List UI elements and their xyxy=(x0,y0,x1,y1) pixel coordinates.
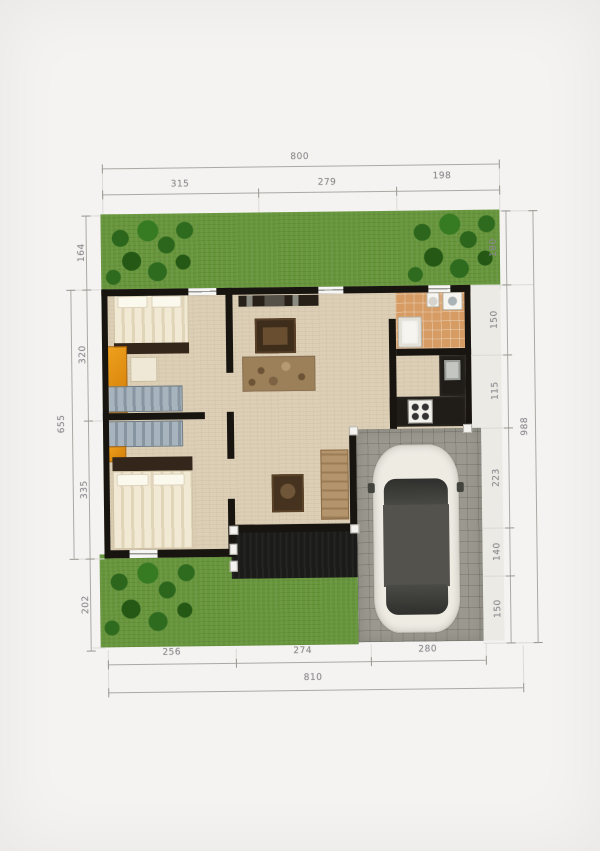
floorplan-image: 800 315 279 198 256 274 280 810 164 320 … xyxy=(0,0,600,851)
stove xyxy=(408,399,433,423)
dining-table xyxy=(272,474,304,512)
dim-tick xyxy=(66,290,75,291)
dim-tick xyxy=(501,210,510,211)
car-windshield xyxy=(384,478,448,507)
dim-tick xyxy=(534,642,543,643)
wall-bedroom-2-bottom xyxy=(105,549,235,559)
dim-tick xyxy=(486,656,487,665)
toilet xyxy=(426,292,439,307)
terrace-door-step-1 xyxy=(229,544,237,555)
dim-top-seg2-label: 279 xyxy=(307,176,347,188)
dim-tick xyxy=(503,354,512,355)
dim-tick xyxy=(108,660,109,669)
living-room-rug xyxy=(242,356,315,392)
side-table-bedroom-1 xyxy=(130,357,157,382)
shower-tub xyxy=(398,317,422,348)
wall-bedroom-divider xyxy=(103,412,205,420)
wall-bedroom-column-b xyxy=(227,412,235,459)
pillar-carport-left xyxy=(349,426,358,435)
wall-bathroom-left xyxy=(389,319,397,429)
extension-line xyxy=(108,650,109,690)
dim-tick xyxy=(499,186,500,195)
car-mirror-left xyxy=(368,483,375,493)
dim-tick xyxy=(523,683,524,692)
dim-left-outer-label: 655 xyxy=(56,409,68,439)
wall-carport-divider xyxy=(349,429,357,531)
wall-living-bottom xyxy=(234,523,357,533)
dim-bottom-seg3-label: 280 xyxy=(408,643,448,655)
dim-tick xyxy=(87,651,96,652)
dim-right-seg5-label: 140 xyxy=(491,537,503,567)
dim-line-left-segments xyxy=(85,216,91,651)
window-top-3 xyxy=(428,285,450,292)
dim-tick xyxy=(528,210,537,211)
pillar-terrace-left xyxy=(229,526,238,535)
tv-cabinet xyxy=(238,295,318,307)
pillar-carport-right xyxy=(463,424,472,433)
dim-bottom-total-label: 810 xyxy=(293,672,333,684)
car-roof xyxy=(383,504,450,587)
dim-tick xyxy=(84,421,93,422)
terrace-floor xyxy=(231,527,358,579)
dim-tick xyxy=(371,657,372,666)
dim-tick xyxy=(507,642,516,643)
dim-right-outer-label: 988 xyxy=(519,411,531,441)
dim-tick xyxy=(505,527,514,528)
terrace-door-step-2 xyxy=(230,561,238,572)
dim-tick xyxy=(504,427,513,428)
dim-tick xyxy=(499,160,500,169)
dim-bottom-seg2-label: 274 xyxy=(283,645,323,657)
extension-line xyxy=(93,647,106,648)
dim-tick xyxy=(86,559,95,560)
dim-line-bottom-segments xyxy=(108,660,486,666)
bed-2-headboard xyxy=(112,456,192,471)
dim-top-seg3-label: 198 xyxy=(422,170,462,182)
dim-line-right-outer xyxy=(532,210,538,642)
dim-tick xyxy=(102,164,103,173)
closet-bedroom-1 xyxy=(108,385,183,412)
closet-bedroom-2 xyxy=(108,420,183,447)
bed-2-pillow-right xyxy=(153,473,185,485)
dim-tick xyxy=(506,575,515,576)
dim-top-seg1-label: 315 xyxy=(160,178,200,190)
dim-left-seg2-label: 320 xyxy=(77,340,89,370)
kitchen-sink xyxy=(444,360,460,380)
car xyxy=(372,444,460,633)
pillar-terrace-right xyxy=(350,524,359,533)
dim-left-seg3-label: 335 xyxy=(79,475,91,505)
bed-2-pillow-left xyxy=(117,474,149,486)
bush-top-left xyxy=(103,217,196,290)
bed-1-pillow-left xyxy=(117,296,147,308)
dim-top-total-label: 800 xyxy=(280,151,320,163)
dim-line-bottom-total xyxy=(108,687,523,693)
washbasin xyxy=(442,292,462,310)
dim-right-seg3-label: 115 xyxy=(489,376,501,406)
coffee-table xyxy=(255,318,296,353)
floorplan-scene: 800 315 279 198 256 274 280 810 164 320 … xyxy=(0,0,600,851)
dim-tick xyxy=(82,290,91,291)
dim-tick xyxy=(102,190,103,199)
dim-right-seg6-label: 150 xyxy=(492,594,504,624)
dim-line-top-total xyxy=(102,164,499,170)
bush-bottom-left xyxy=(102,557,199,643)
wall-bathroom-bottom xyxy=(396,348,471,356)
dim-tick xyxy=(258,188,259,197)
dim-right-seg4-label: 223 xyxy=(490,463,502,493)
dim-tick xyxy=(396,187,397,196)
dim-tick xyxy=(502,284,511,285)
sideboard-cabinet xyxy=(320,449,349,519)
dim-left-seg4-label: 202 xyxy=(80,590,92,620)
extension-line xyxy=(258,196,259,212)
car-mirror-right xyxy=(457,482,464,492)
window-bedroom-2 xyxy=(130,550,158,558)
dim-bottom-seg1-label: 256 xyxy=(152,646,192,658)
bush-top-right xyxy=(405,210,498,289)
car-rear-window xyxy=(386,584,448,615)
window-top-2 xyxy=(318,286,343,293)
dim-tick xyxy=(70,559,79,560)
extension-line xyxy=(396,195,397,211)
dim-right-seg2-label: 150 xyxy=(489,305,501,335)
extension-line xyxy=(523,645,524,685)
dim-tick xyxy=(236,659,237,668)
dim-tick xyxy=(81,216,90,217)
dim-tick xyxy=(108,688,109,697)
window-top-1 xyxy=(188,288,216,295)
bed-1-pillow-right xyxy=(151,295,181,307)
dim-right-seg1-label: 180 xyxy=(488,233,500,263)
wall-bedroom-column-a xyxy=(225,288,233,373)
dim-line-left-outer xyxy=(70,290,74,559)
dim-left-seg1-label: 164 xyxy=(76,238,88,268)
